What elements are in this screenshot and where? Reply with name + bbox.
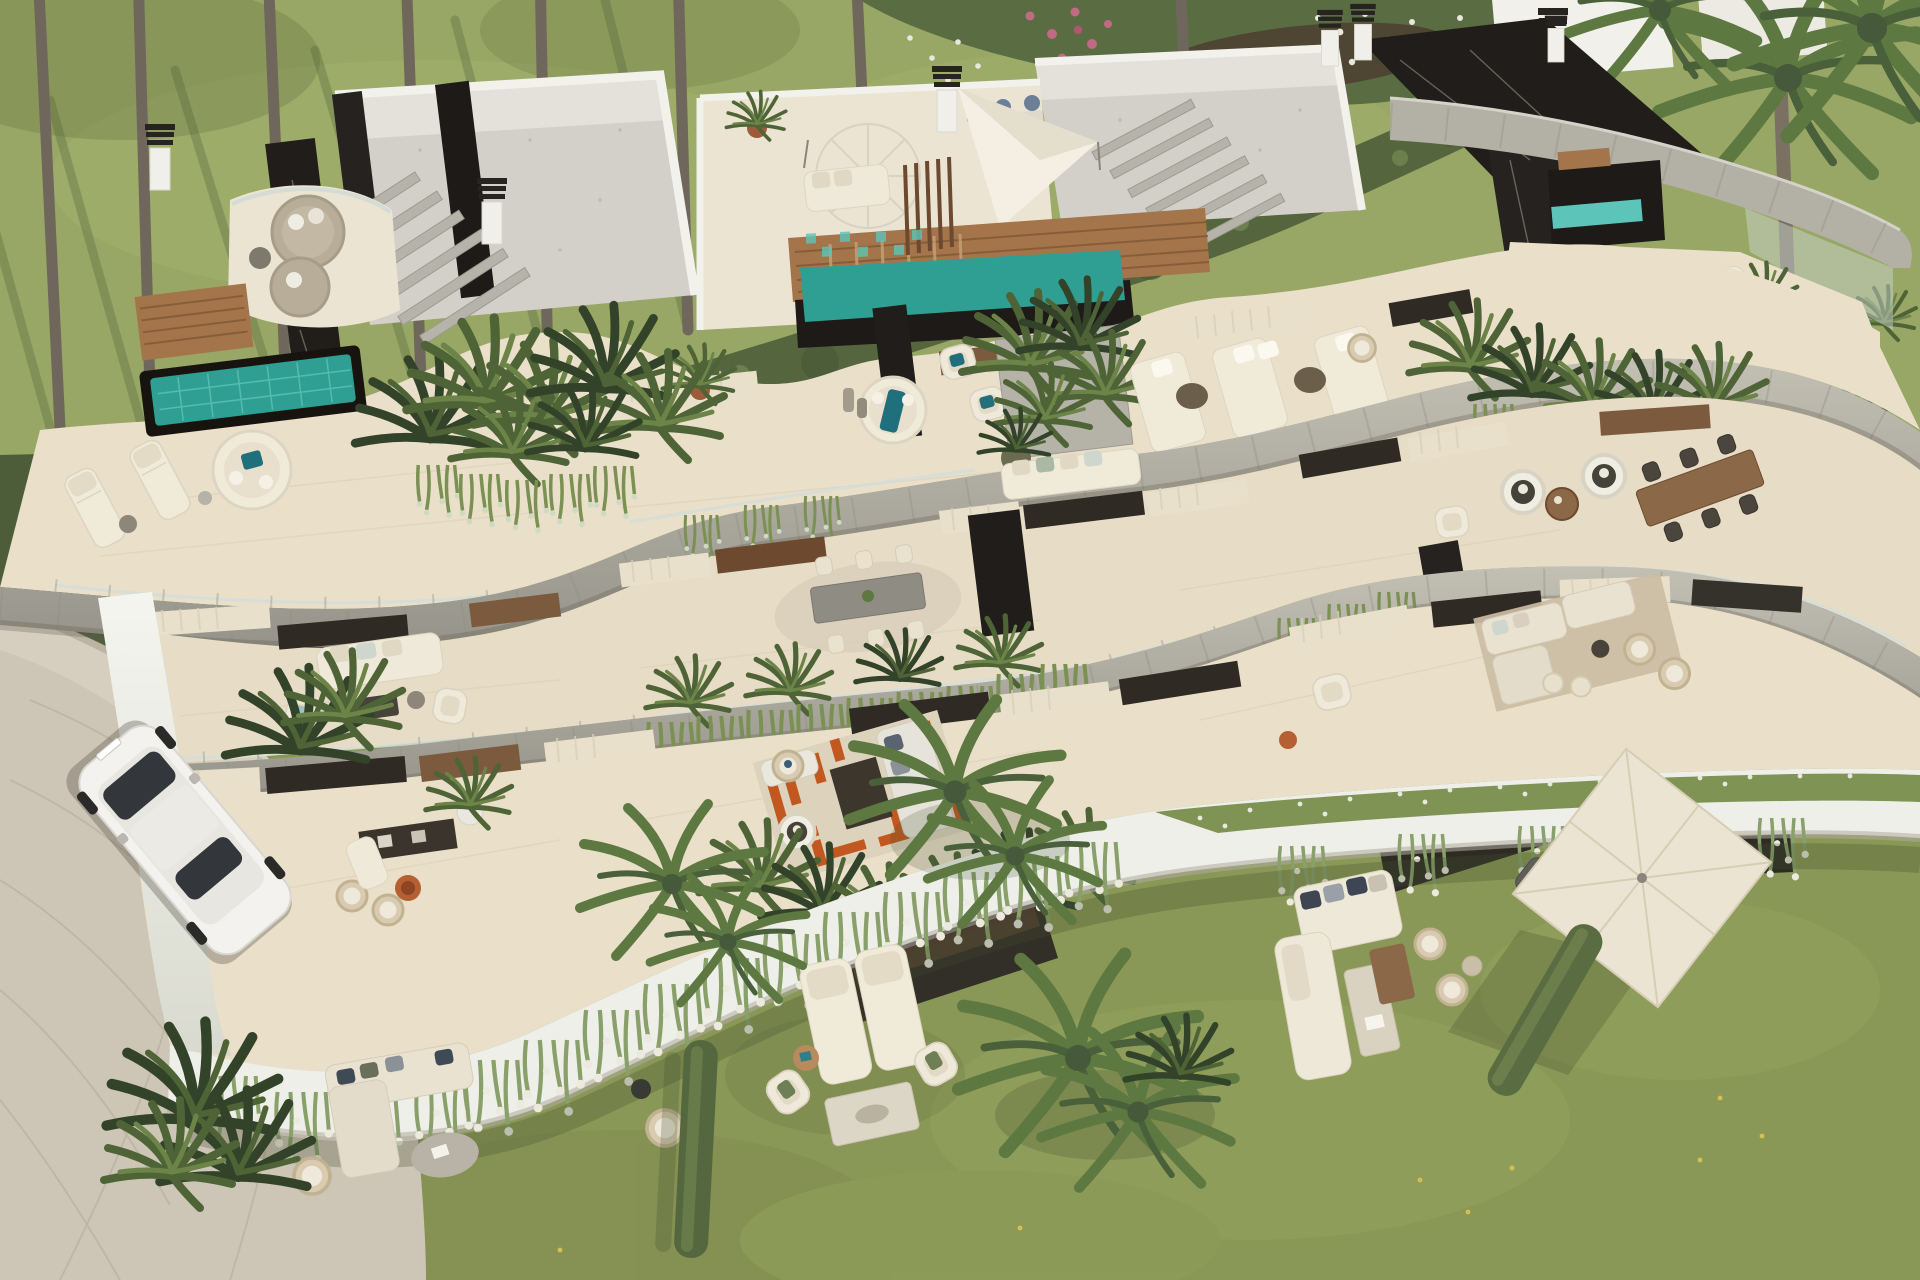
chimney	[932, 66, 962, 132]
rooftop-round-terrace	[228, 185, 400, 327]
chimney	[477, 178, 507, 244]
aerial-render	[0, 0, 1920, 1280]
roof-plunge-pool-right	[1548, 148, 1665, 250]
chimney	[145, 124, 175, 190]
round-daybed	[213, 431, 291, 509]
rooftop-daybed	[803, 164, 891, 213]
